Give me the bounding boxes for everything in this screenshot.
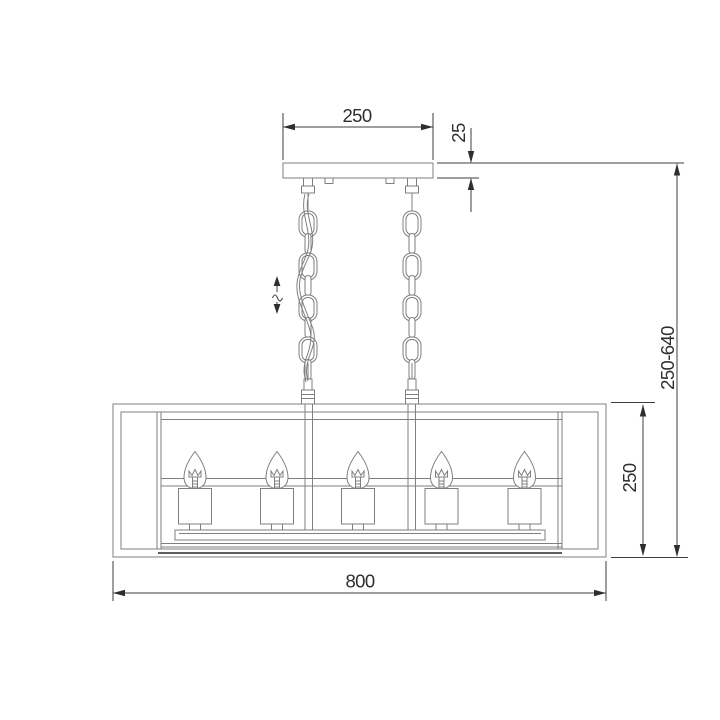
candle-bulb-5: [508, 452, 541, 531]
drawing-canvas: 250 25 250-640 250 800: [0, 0, 720, 720]
dimension-body-width: 800: [113, 561, 606, 601]
bottom-bar: [175, 530, 545, 540]
dim-label-canopy-width: 250: [342, 105, 371, 126]
dim-label-body-height: 250: [619, 463, 640, 492]
candle-bulb-1: [179, 452, 212, 531]
candle-bulb-4: [425, 452, 458, 531]
dimension-canopy-thickness: 25: [437, 123, 684, 212]
canopy-tab-right: [386, 178, 394, 184]
dimension-suspension-height: 250-640: [657, 164, 680, 558]
technical-drawing: 250 25 250-640 250 800: [0, 0, 720, 720]
dim-label-canopy-thickness: 25: [448, 123, 469, 143]
dimension-canopy-width: 250: [283, 105, 433, 160]
dim-label-suspension-height: 250-640: [657, 326, 678, 390]
candle-bulb-2: [261, 452, 294, 531]
chain-right: [403, 178, 421, 404]
dim-label-body-width: 800: [345, 571, 374, 592]
height-adjust-indicator: [273, 276, 283, 314]
candle-bulb-3: [342, 452, 375, 531]
canopy-tab-left: [325, 178, 333, 184]
dimension-body-height: 250: [611, 403, 688, 558]
